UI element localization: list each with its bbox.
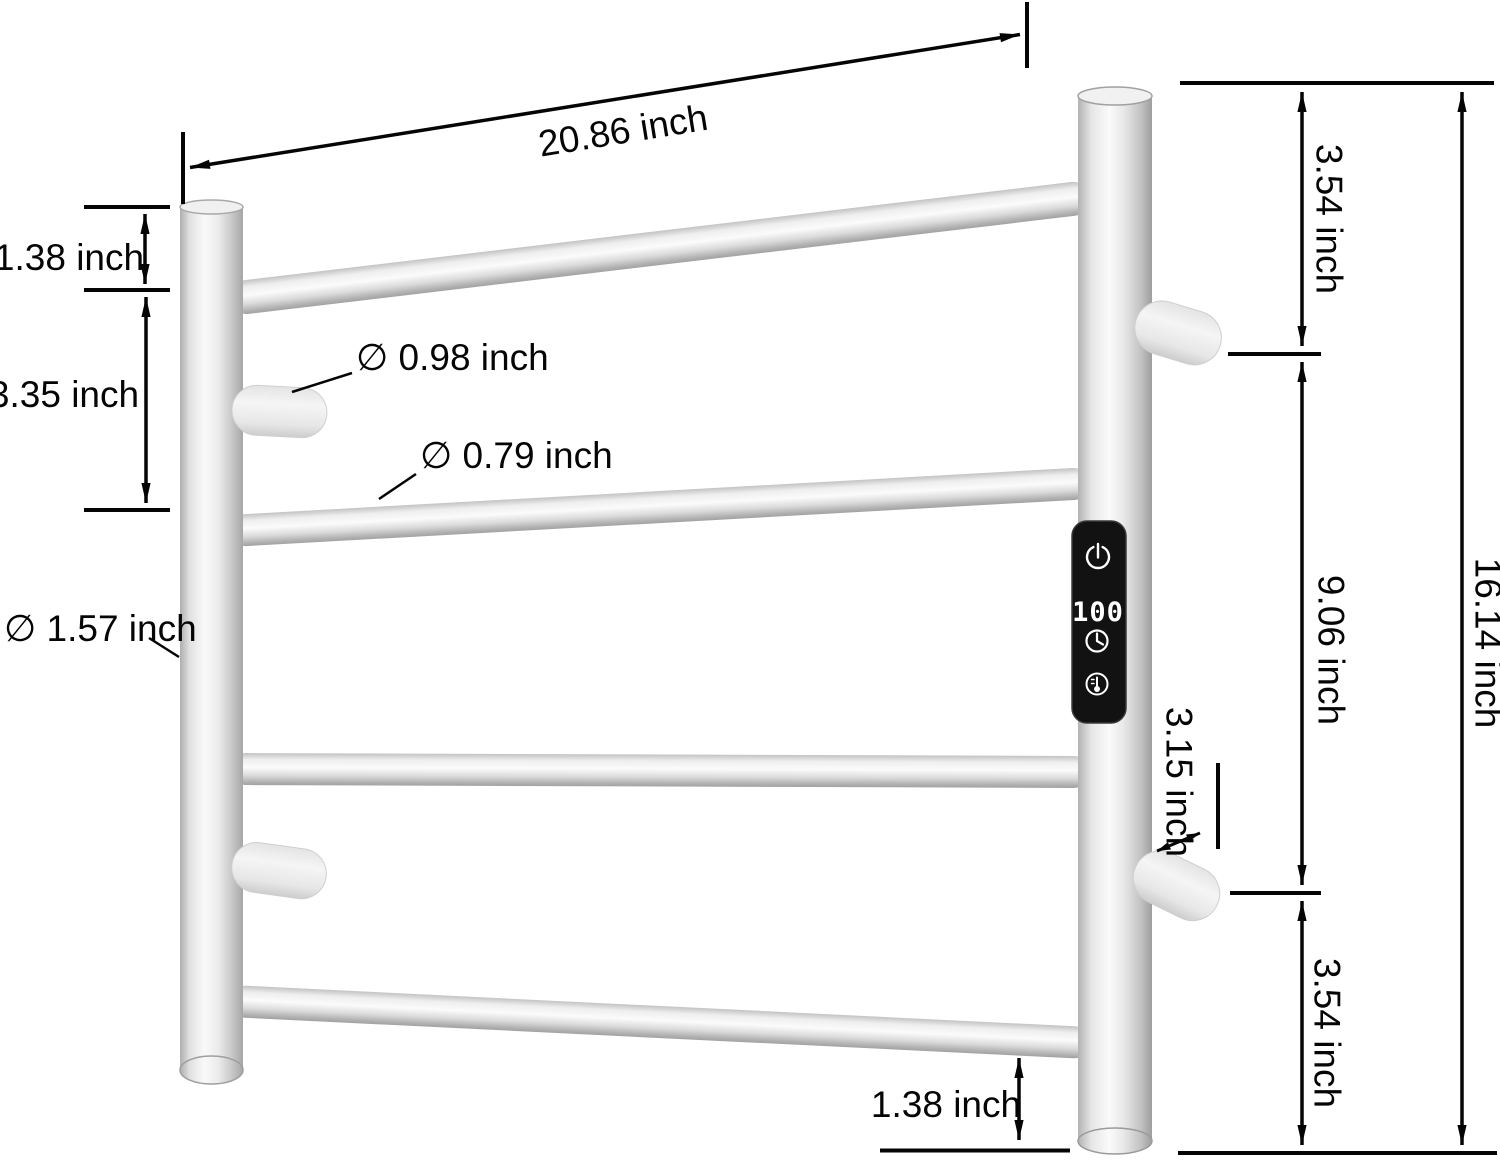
diagram-canvas: 100 20.86 inch 1.38 i [0,0,1500,1163]
hook-left-top [231,384,328,439]
hook-left-bottom-peg [229,839,330,902]
dim-label-gap-bottom: 1.38 inch [871,1084,1021,1125]
hook-left-top-peg [231,384,328,439]
leader-line-dia-bar [379,474,416,499]
towel-bar-2 [229,467,1090,547]
towel-bar-2-tube [229,467,1090,547]
hook-left-bottom [229,839,330,902]
dim-label-gap-top-left: 1.38 inch [0,237,144,278]
left-post-top-cap [180,200,243,214]
control-panel: 100 [1072,521,1126,723]
right-post-bottom-cap [1078,1128,1152,1154]
towel-rack-dimension-diagram: 100 20.86 inch 1.38 i [0,0,1500,1163]
towel-bar-1-tube [228,180,1092,316]
dim-label-gap-top-right: 3.54 inch [1309,144,1350,294]
temperature-icon-bulb [1094,686,1100,692]
dim-label-dia-post: ∅ 1.57 inch [4,608,197,649]
towel-bar-1 [228,180,1092,316]
towel-bar-4 [229,985,1091,1059]
right-post-top-cap [1078,87,1152,105]
left-post-bottom-cap [180,1056,243,1084]
dim-label-dia-bar: ∅ 0.79 inch [420,435,613,476]
led-display: 100 [1072,597,1124,628]
towel-bar-3-tube [230,753,1090,788]
dim-label-span-mid-right: 9.06 inch [1311,575,1352,725]
dim-label-dia-hook: ∅ 0.98 inch [356,337,549,378]
dim-label-gap-bottom-right: 3.54 inch [1307,958,1348,1108]
towel-bar-3 [230,753,1090,788]
towel-bar-4-tube [229,985,1091,1059]
dim-label-spacing-left: 3.35 inch [0,374,139,415]
towel-rack: 100 [180,87,1229,1154]
dim-label-height-total: 16.14 inch [1468,558,1500,729]
leader-line-dia-hook [292,373,352,392]
